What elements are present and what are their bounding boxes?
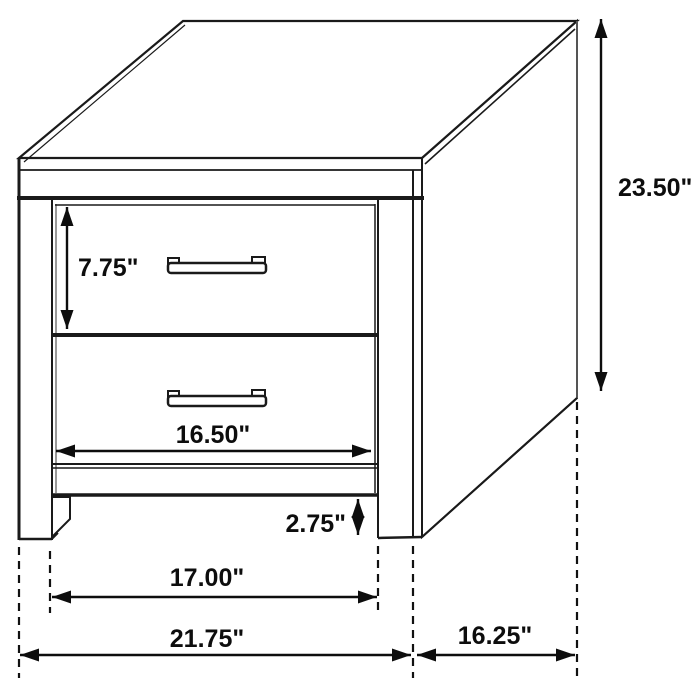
drawer-height-label: 7.75" [78, 254, 139, 282]
drawer-width-label: 16.50" [176, 421, 250, 449]
dimension-between-legs-width: 17.00" [52, 564, 377, 597]
dimension-leg-height: 2.75" [285, 499, 358, 538]
overall-height-label: 23.50" [618, 174, 692, 202]
diagram-page: 23.50" 7.75" 16.50" 2.75" 17.00" 21.75" … [0, 0, 700, 700]
left-leg-side-bracket [52, 497, 70, 537]
drawer2-handle [168, 390, 266, 406]
drawer2-handle-bar [168, 396, 266, 406]
drawer1-handle-bar [168, 263, 266, 273]
nightstand-dimension-diagram: 23.50" 7.75" 16.50" 2.75" 17.00" 21.75" … [0, 0, 700, 700]
overall-width-label: 21.75" [170, 625, 244, 653]
dimension-drawer-height: 7.75" [67, 207, 139, 329]
dimension-depth: 16.25" [417, 622, 575, 655]
dimension-drawer-width: 16.50" [56, 421, 371, 451]
depth-label: 16.25" [458, 622, 532, 650]
dimension-overall-height: 23.50" [601, 19, 692, 391]
leg-height-label: 2.75" [285, 510, 346, 538]
between-legs-width-label: 17.00" [170, 564, 244, 592]
drawer1-handle [168, 257, 266, 273]
dimension-overall-width: 21.75" [20, 625, 411, 655]
right-leg-bottom-edge [378, 537, 422, 538]
